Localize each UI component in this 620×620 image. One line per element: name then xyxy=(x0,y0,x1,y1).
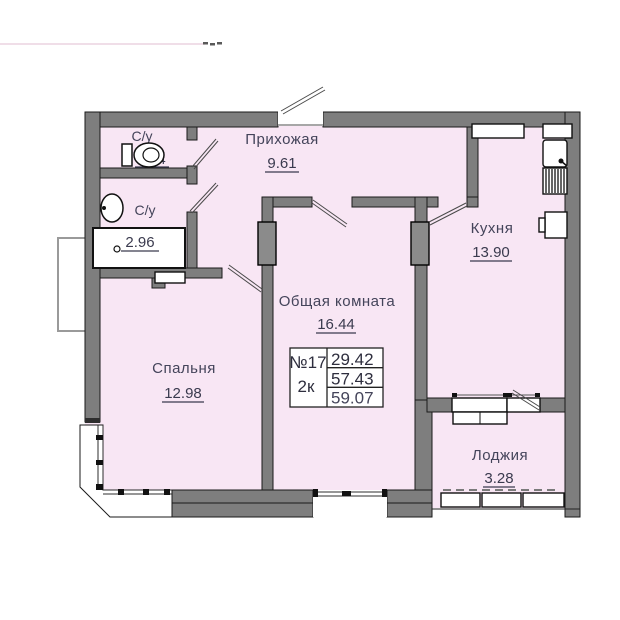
room-label-wc1: С/у xyxy=(132,128,153,144)
room-label-hallway: Прихожая xyxy=(245,131,319,148)
room-area-living: 16.44 xyxy=(317,316,355,333)
unit-type: 2к xyxy=(298,377,315,396)
room-label-kitchen: Кухня xyxy=(471,220,514,237)
room-label-wc2: С/у xyxy=(135,202,156,218)
top-decor-line xyxy=(0,42,222,46)
room-label-loggia: Лоджия xyxy=(472,447,528,464)
floor-plan: С/у 1.54 С/у 2.96 Прихожая 9.61 Кухня 13… xyxy=(0,0,620,620)
room-area-loggia: 3.28 xyxy=(484,470,513,487)
unit-number: №17 xyxy=(289,353,326,372)
room-area-wc2: 2.96 xyxy=(125,234,154,251)
room-area-bedroom: 12.98 xyxy=(164,385,202,402)
washbasin-icon xyxy=(101,194,123,222)
floor-plan-page: С/у 1.54 С/у 2.96 Прихожая 9.61 Кухня 13… xyxy=(0,0,620,620)
living-area-value: 29.42 xyxy=(331,350,374,369)
loggia-glazing xyxy=(432,490,580,509)
vent-shaft-icon xyxy=(472,124,524,138)
vent-shaft-icon xyxy=(543,124,572,138)
area-value: 57.43 xyxy=(331,370,374,389)
adjacent-structure xyxy=(58,238,86,331)
total-area-value: 59.07 xyxy=(331,389,374,408)
entrance-opening xyxy=(278,110,323,126)
kitchen-sink-icon xyxy=(543,140,567,194)
room-area-kitchen: 13.90 xyxy=(472,244,510,261)
unit-info-box: №17 2к 29.42 57.43 59.07 xyxy=(289,348,383,408)
room-label-living: Общая комната xyxy=(279,293,396,310)
toilet-icon xyxy=(122,143,164,167)
living-room-window xyxy=(313,489,387,517)
room-label-bedroom: Спальня xyxy=(152,360,216,377)
room-area-hallway: 9.61 xyxy=(267,155,296,172)
